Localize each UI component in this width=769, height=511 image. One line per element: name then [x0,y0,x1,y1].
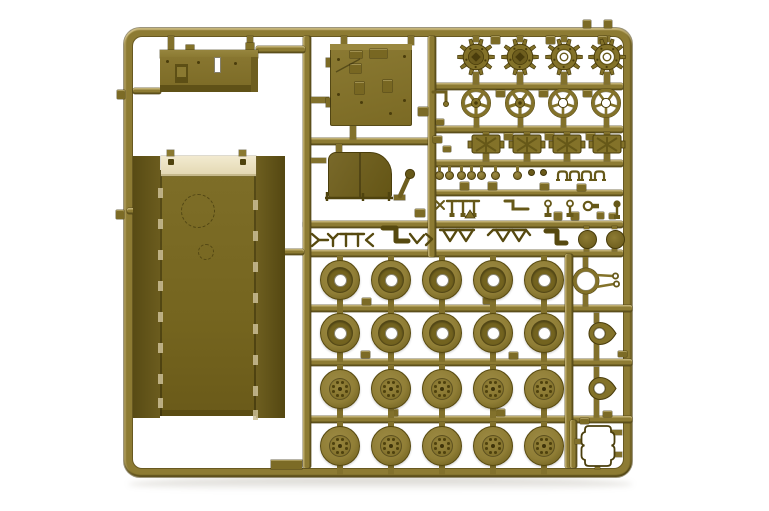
road-wheel-hole [436,274,449,287]
road-wheel-bolt [332,447,335,450]
hatch-eyelet [586,376,620,401]
road-wheel-axle-dot [542,444,546,448]
road-wheel-bolt [494,394,497,397]
road-wheel-stem [337,408,343,418]
road-wheel-bolt [485,390,488,393]
road-wheel-bolt [536,385,539,388]
road-wheel-bolt [345,390,348,393]
road-wheel-bolt [438,394,441,397]
road-wheel-bolt [396,447,399,450]
road-wheel-bolt [549,385,552,388]
road-wheel-bolt [336,451,339,454]
road-wheel-stem [388,352,394,362]
road-wheel-bolt [392,451,395,454]
road-wheel-axle-dot [542,387,546,391]
road-wheel-bolt [443,394,446,397]
road-wheel-bolt [485,385,488,388]
road-wheel-bolt [392,394,395,397]
road-wheel-bolt [336,438,339,441]
road-wheel-bolt [447,442,450,445]
road-wheel-bolt [383,447,386,450]
road-wheel-bolt [332,442,335,445]
road-wheel-bolt [447,447,450,450]
road-wheel-stem [388,299,394,309]
road-wheel-axle-dot [389,387,393,391]
road-wheel-bolt [341,451,344,454]
road-wheel-bolt [498,385,501,388]
road-wheel-bolt [540,438,543,441]
road-wheel-bolt [387,381,390,384]
road-wheel-bolt [396,442,399,445]
road-wheel-bolt [345,385,348,388]
road-wheel-bolt [498,447,501,450]
road-wheel-stem [337,352,343,362]
road-wheel-axle-dot [338,444,342,448]
road-wheel-bolt [383,442,386,445]
road-wheel-bolt [336,394,339,397]
road-wheel-hole [436,327,449,340]
road-wheel-bolt [434,390,437,393]
stage [0,0,769,511]
road-wheel-bolt [545,394,548,397]
road-wheel-stem [439,465,445,475]
road-wheel-stem [388,465,394,475]
road-wheel-hole [385,327,398,340]
road-wheel-stem [388,408,394,418]
hatch-eyelet [586,321,620,346]
road-wheel-bolt [540,451,543,454]
road-wheel-bolt [489,451,492,454]
road-wheel-bolt [536,390,539,393]
road-wheel-bolt [540,381,543,384]
road-wheel-axle-dot [389,444,393,448]
road-wheel-bolt [438,451,441,454]
road-wheel-bolt [341,394,344,397]
road-wheel-bolt [387,451,390,454]
road-wheel-bolt [485,447,488,450]
road-wheel-stem [541,299,547,309]
road-wheel-stem [490,408,496,418]
disc-part [606,230,625,249]
road-wheel-hole [487,327,500,340]
road-wheel-bolt [540,394,543,397]
road-wheel-stem [541,352,547,362]
road-wheel-bolt [549,447,552,450]
road-wheel-stem [490,352,496,362]
road-wheel-stem [490,465,496,475]
road-wheel-axle-dot [491,444,495,448]
road-wheel-stem [439,352,445,362]
road-wheel-bolt [489,381,492,384]
road-wheel-stem [439,299,445,309]
road-wheel-hole [385,274,398,287]
road-wheel-stem [541,465,547,475]
tow-shackle-ring [570,261,622,302]
road-wheel-bolt [396,390,399,393]
road-wheel-bolt [438,381,441,384]
road-wheel-bolt [498,442,501,445]
road-wheel-bolt [498,390,501,393]
road-wheel-bolt [345,447,348,450]
road-wheel-bolt [549,442,552,445]
road-wheel-bolt [434,442,437,445]
road-wheel-stem [439,408,445,418]
road-wheel-stem [490,299,496,309]
road-wheel-bolt [443,451,446,454]
road-wheel-bolt [434,447,437,450]
road-wheel-bolt [549,390,552,393]
road-wheel-bolt [332,385,335,388]
road-wheel-stem [337,299,343,309]
road-wheel-hole [334,327,347,340]
road-wheel-axle-dot [491,387,495,391]
road-wheel-hole [538,274,551,287]
road-wheel-bolt [536,442,539,445]
road-wheel-bolt [545,451,548,454]
road-wheel-bolt [434,385,437,388]
road-wheel-bolt [489,394,492,397]
road-wheel-bolt [447,385,450,388]
road-wheel-bolt [536,447,539,450]
road-wheel-hole [334,274,347,287]
road-wheel-bolt [494,451,497,454]
road-wheel-hole [487,274,500,287]
frame-gasket [578,423,618,469]
road-wheel-bolt [438,438,441,441]
road-wheel-bolt [387,394,390,397]
road-wheel-bolt [383,385,386,388]
disc-part [578,230,597,249]
road-wheel-bolt [396,385,399,388]
road-wheel-bolt [447,390,450,393]
road-wheel-axle-dot [440,444,444,448]
road-wheel-bolt [345,442,348,445]
road-wheel-bolt [336,381,339,384]
road-wheel-bolt [489,438,492,441]
road-wheel-bolt [485,442,488,445]
road-wheel-axle-dot [338,387,342,391]
road-wheel-bolt [387,438,390,441]
road-wheel-bolt [332,390,335,393]
road-wheel-hole [538,327,551,340]
bottom-flat-tab [271,460,302,469]
road-wheel-stem [337,465,343,475]
road-wheel-axle-dot [440,387,444,391]
road-wheel-bolt [383,390,386,393]
road-wheel-stem [541,408,547,418]
